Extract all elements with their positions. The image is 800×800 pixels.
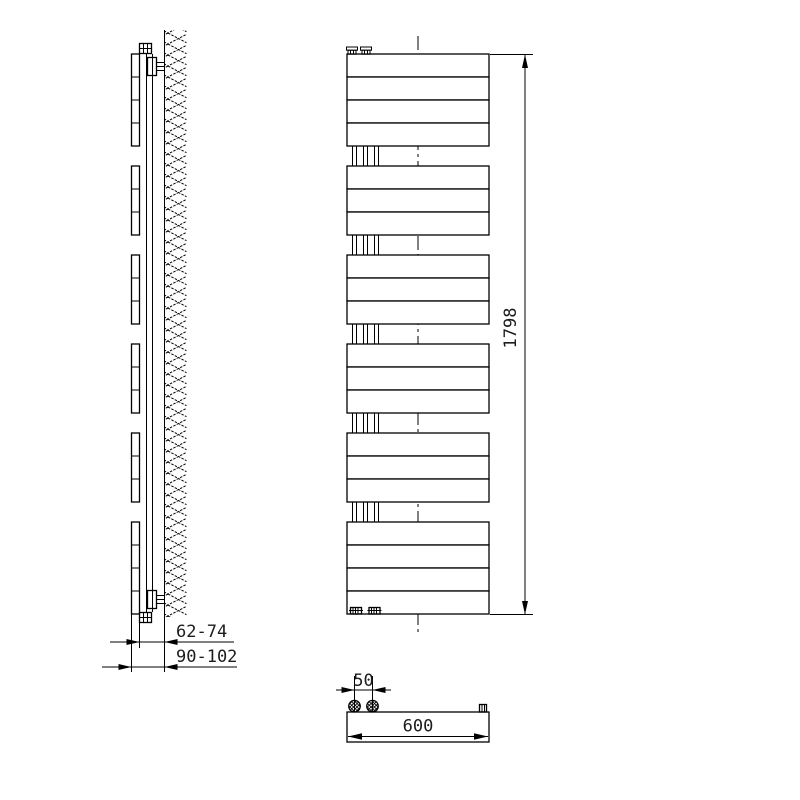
fitting-detail [482,705,485,713]
fitting-body [480,705,487,713]
slat-division-ticks [132,77,140,591]
radiator-technical-drawing: 62-74 90-102 [0,0,800,800]
slat-group [132,344,140,413]
dim-label-depth-inner: 62-74 [176,622,227,642]
dim-label-depth-outer: 90-102 [176,647,237,667]
panel-bar [347,433,489,456]
slat-group [132,255,140,324]
wall-hatch [165,30,187,617]
panel-bar [347,367,489,390]
bar-group-4 [347,344,489,413]
bar-group-2 [347,166,489,235]
panel-bar [347,522,489,545]
fitting-detail [140,613,152,622]
bar-group-1 [347,54,489,146]
top-view-right-fitting [480,705,487,713]
connector-tubes-4 [353,413,379,433]
arrowhead [522,601,528,615]
panel-bar [347,189,489,212]
panel-bar [347,545,489,568]
panel-bar [347,77,489,100]
arrowhead [127,639,140,645]
panel-bar [347,100,489,123]
bar-group-3 [347,255,489,324]
side-bottom-fitting [140,613,152,623]
panel-bar [347,54,489,77]
panel-bar [347,479,489,502]
slat-group [132,433,140,502]
connector-tubes-2 [353,235,379,255]
arrowhead [522,55,528,69]
dim-depth-outer: 90-102 [102,647,237,670]
front-view: 1798 [347,36,534,634]
side-top-fitting [140,44,152,54]
side-top-bracket [148,58,165,76]
bar-group-6 [347,522,489,614]
front-top-fittings [347,47,372,54]
connector-tubes-5 [353,502,379,522]
bar-group-5 [347,433,489,502]
dim-label-height: 1798 [501,308,521,349]
connector-tubes-3 [353,324,379,344]
side-collector-tube [147,54,153,612]
panel-bar [347,166,489,189]
arrowhead [373,687,386,693]
technical-drawing-page: 62-74 90-102 [0,0,800,800]
panel-bar [347,212,489,235]
side-view: 62-74 90-102 [102,30,237,672]
dim-connection-spacing: 50 [336,671,391,693]
panel-bar [347,344,489,367]
arrowhead [119,664,132,670]
panel-bar [347,255,489,278]
panel-bar [347,568,489,591]
dim-height: 1798 [490,55,533,615]
panel-bar [347,456,489,479]
panel-bar [347,278,489,301]
fitting-detail [140,44,152,54]
dim-label-width: 600 [403,717,434,737]
wall-section [165,30,187,672]
side-bottom-bracket [148,591,165,609]
slat-group [132,166,140,235]
dim-label-spacing: 50 [353,671,373,691]
top-view: 50 600 [336,671,489,742]
panel-bar [347,123,489,146]
connector-tubes-1 [353,146,379,166]
side-panel-slats [132,54,140,614]
connection-spigot [367,700,379,712]
panel-bar [347,301,489,324]
connection-spigot [349,700,361,712]
panel-bar [347,390,489,413]
